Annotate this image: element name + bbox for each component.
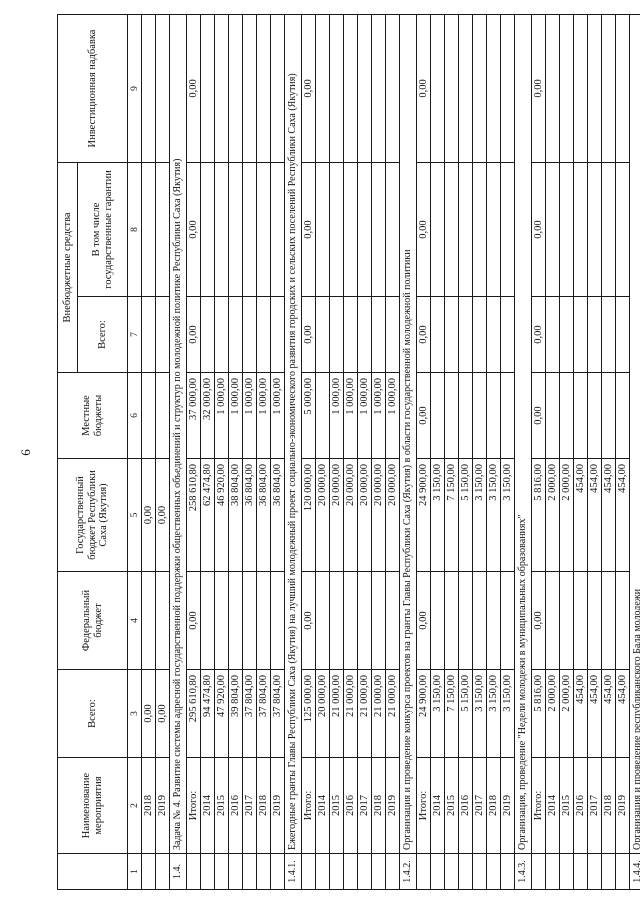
value-cell	[142, 373, 156, 459]
value-cell	[588, 572, 602, 670]
value-cell	[156, 572, 170, 670]
col-number: 9	[128, 14, 142, 162]
value-cell: 36 804,00	[271, 459, 285, 572]
value-cell	[386, 297, 400, 373]
row-number-cell	[445, 854, 459, 890]
value-cell: 37 804,00	[257, 670, 271, 758]
value-cell	[316, 297, 330, 373]
value-cell	[330, 297, 344, 373]
value-cell: 1 000,00	[271, 373, 285, 459]
table-row: 201837 804,0036 804,001 000,00	[257, 14, 271, 889]
row-number-cell	[156, 854, 170, 890]
value-cell	[201, 162, 215, 296]
row-label: Итого:	[187, 758, 201, 854]
table-row: 201721 000,0020 000,001 000,00	[358, 14, 372, 889]
value-cell	[271, 297, 285, 373]
value-cell: 32 000,00	[201, 373, 215, 459]
row-label: 2019	[156, 758, 170, 854]
col-number: 8	[128, 162, 142, 296]
value-cell	[271, 572, 285, 670]
value-cell	[546, 373, 560, 459]
row-number-cell	[358, 854, 372, 890]
value-cell: 0,00	[417, 14, 431, 162]
value-cell	[201, 14, 215, 162]
value-cell	[588, 373, 602, 459]
value-cell: 0,00	[417, 373, 431, 459]
value-cell	[501, 162, 515, 296]
table-row: 20190,000,00	[156, 14, 170, 889]
table-row: 20143 150,003 150,00	[431, 14, 445, 889]
page-number: 6	[18, 0, 34, 905]
value-cell	[358, 297, 372, 373]
value-cell: 62 474,80	[201, 459, 215, 572]
table-row: 20157 150,007 150,00	[445, 14, 459, 889]
section-row: 1.4.4.Организация и проведение республик…	[630, 14, 640, 889]
value-cell	[215, 572, 229, 670]
value-cell	[616, 572, 630, 670]
value-cell: 3 150,00	[473, 670, 487, 758]
table-row: Итого:125 000,000,00120 000,005 000,000,…	[302, 14, 316, 889]
value-cell	[546, 14, 560, 162]
header-state-guarantees: В том числе государственные гарантии	[78, 162, 128, 296]
value-cell: 454,00	[602, 459, 616, 572]
table-row: 201639 804,0038 804,001 000,00	[229, 14, 243, 889]
value-cell	[501, 14, 515, 162]
row-label: 2014	[431, 758, 445, 854]
value-cell	[501, 572, 515, 670]
row-number-cell	[546, 854, 560, 890]
value-cell: 0,00	[187, 572, 201, 670]
value-cell: 2 000,00	[546, 459, 560, 572]
value-cell	[546, 162, 560, 296]
row-number-cell	[417, 854, 431, 890]
value-cell	[271, 162, 285, 296]
value-cell	[546, 572, 560, 670]
section-row: 1.4.Задача № 4. Развитие системы адресно…	[170, 14, 187, 889]
header-row: Наименование мероприятия Всего: Федераль…	[58, 14, 78, 889]
row-number-cell	[302, 854, 316, 890]
col-number: 4	[128, 572, 142, 670]
row-number-cell	[215, 854, 229, 890]
table-row: 20180,000,00	[142, 14, 156, 889]
row-number-cell	[257, 854, 271, 890]
value-cell	[344, 162, 358, 296]
value-cell: 5 816,00	[532, 459, 546, 572]
row-label: 2014	[316, 758, 330, 854]
value-cell: 0,00	[532, 373, 546, 459]
value-cell: 7 150,00	[445, 670, 459, 758]
section-number: 1.4.	[170, 854, 187, 890]
value-cell	[229, 297, 243, 373]
value-cell: 0,00	[417, 297, 431, 373]
value-cell: 1 000,00	[229, 373, 243, 459]
value-cell	[445, 162, 459, 296]
row-number-cell	[142, 854, 156, 890]
row-number-cell	[187, 854, 201, 890]
value-cell	[574, 297, 588, 373]
value-cell: 36 804,00	[243, 459, 257, 572]
row-label: 2014	[546, 758, 560, 854]
row-label: 2015	[445, 758, 459, 854]
value-cell	[142, 572, 156, 670]
header-federal-budget: Федеральный бюджет	[58, 572, 128, 670]
value-cell	[602, 14, 616, 162]
value-cell	[243, 572, 257, 670]
value-cell: 0,00	[417, 572, 431, 670]
table-row: 20152 000,002 000,00	[560, 14, 574, 889]
value-cell: 0,00	[302, 297, 316, 373]
row-number-cell	[431, 854, 445, 890]
value-cell: 20 000,00	[316, 459, 330, 572]
col-number: 1	[128, 854, 142, 890]
row-label: 2019	[386, 758, 400, 854]
row-label: 2016	[229, 758, 243, 854]
table-body: 20180,000,0020190,000,001.4.Задача № 4. …	[142, 14, 640, 889]
row-number-cell	[201, 854, 215, 890]
row-label: Итого:	[302, 758, 316, 854]
value-cell: 1 000,00	[215, 373, 229, 459]
table-row: 2017454,00454,00	[588, 14, 602, 889]
value-cell: 454,00	[616, 459, 630, 572]
value-cell	[501, 373, 515, 459]
value-cell	[431, 373, 445, 459]
table-row: 201547 920,0046 920,001 000,00	[215, 14, 229, 889]
value-cell	[142, 297, 156, 373]
value-cell	[257, 572, 271, 670]
section-title: Организация и проведение республиканског…	[630, 14, 640, 853]
value-cell: 0,00	[156, 459, 170, 572]
table-row: 20165 150,005 150,00	[459, 14, 473, 889]
section-number: 1.4.1.	[285, 854, 302, 890]
value-cell: 20 000,00	[330, 459, 344, 572]
row-number-cell	[386, 854, 400, 890]
row-number-cell	[532, 854, 546, 890]
row-label: 2019	[501, 758, 515, 854]
table-row: 2016454,00454,00	[574, 14, 588, 889]
value-cell	[459, 162, 473, 296]
value-cell: 0,00	[142, 459, 156, 572]
value-cell	[330, 14, 344, 162]
table-row: 201494 474,8062 474,8032 000,00	[201, 14, 215, 889]
value-cell	[142, 14, 156, 162]
table-row: Итого:24 900,000,0024 900,000,000,000,00…	[417, 14, 431, 889]
value-cell: 24 900,00	[417, 670, 431, 758]
value-cell: 3 150,00	[431, 459, 445, 572]
value-cell	[473, 162, 487, 296]
value-cell	[156, 14, 170, 162]
section-title: Задача № 4. Развитие системы адресной го…	[170, 14, 187, 853]
value-cell	[358, 162, 372, 296]
section-title: Ежегодные гранты Главы Республики Саха (…	[285, 14, 302, 853]
column-numbering-row: 1 2 3 4 5 6 7 8 9	[128, 14, 142, 889]
value-cell: 120 000,00	[302, 459, 316, 572]
value-cell	[330, 162, 344, 296]
value-cell	[560, 297, 574, 373]
value-cell: 2 000,00	[560, 459, 574, 572]
value-cell: 3 150,00	[501, 670, 515, 758]
value-cell	[487, 373, 501, 459]
value-cell: 0,00	[532, 162, 546, 296]
col-number: 7	[128, 297, 142, 373]
table-row: 201937 804,0036 804,001 000,00	[271, 14, 285, 889]
value-cell	[201, 572, 215, 670]
row-number-cell	[271, 854, 285, 890]
value-cell	[372, 162, 386, 296]
header-extrabudget-total: Всего:	[78, 297, 128, 373]
value-cell	[588, 14, 602, 162]
value-cell: 3 150,00	[473, 459, 487, 572]
value-cell	[473, 14, 487, 162]
value-cell	[487, 162, 501, 296]
value-cell	[431, 162, 445, 296]
value-cell: 21 000,00	[386, 670, 400, 758]
value-cell	[616, 373, 630, 459]
value-cell: 21 000,00	[330, 670, 344, 758]
value-cell	[215, 297, 229, 373]
value-cell: 1 000,00	[243, 373, 257, 459]
value-cell	[344, 297, 358, 373]
row-number-cell	[229, 854, 243, 890]
section-row: 1.4.1.Ежегодные гранты Главы Республики …	[285, 14, 302, 889]
value-cell	[445, 297, 459, 373]
table-row: Итого:5 816,000,005 816,000,000,000,000,…	[532, 14, 546, 889]
value-cell: 5 150,00	[459, 670, 473, 758]
row-label: 2016	[459, 758, 473, 854]
row-label: 2015	[215, 758, 229, 854]
value-cell: 125 000,00	[302, 670, 316, 758]
value-cell: 37 000,00	[187, 373, 201, 459]
table-row: 201921 000,0020 000,001 000,00	[386, 14, 400, 889]
row-label: 2018	[257, 758, 271, 854]
row-label: 2019	[616, 758, 630, 854]
value-cell	[616, 297, 630, 373]
value-cell	[156, 373, 170, 459]
value-cell	[316, 572, 330, 670]
value-cell	[372, 297, 386, 373]
row-label: 2017	[358, 758, 372, 854]
value-cell	[201, 297, 215, 373]
value-cell	[431, 297, 445, 373]
value-cell	[602, 162, 616, 296]
value-cell	[560, 162, 574, 296]
value-cell: 39 804,00	[229, 670, 243, 758]
value-cell: 21 000,00	[358, 670, 372, 758]
value-cell: 0,00	[187, 297, 201, 373]
row-label: 2018	[372, 758, 386, 854]
table-row: 2019454,00454,00	[616, 14, 630, 889]
value-cell: 36 804,00	[257, 459, 271, 572]
row-number-cell	[574, 854, 588, 890]
value-cell	[588, 162, 602, 296]
value-cell	[616, 14, 630, 162]
section-title: Организация, проведение "Недели молодежи…	[515, 14, 532, 853]
row-number-cell	[560, 854, 574, 890]
value-cell	[316, 373, 330, 459]
col-number: 2	[128, 758, 142, 854]
table-row: 20142 000,002 000,00	[546, 14, 560, 889]
value-cell: 21 000,00	[344, 670, 358, 758]
value-cell	[344, 572, 358, 670]
value-cell	[229, 572, 243, 670]
value-cell: 0,00	[302, 162, 316, 296]
value-cell: 94 474,80	[201, 670, 215, 758]
table-row: 2018454,00454,00	[602, 14, 616, 889]
value-cell	[487, 297, 501, 373]
value-cell	[372, 14, 386, 162]
table-row: 201420 000,0020 000,00	[316, 14, 330, 889]
table-row: Итого:295 610,800,00258 610,8037 000,000…	[187, 14, 201, 889]
value-cell	[243, 14, 257, 162]
value-cell: 20 000,00	[316, 670, 330, 758]
header-total: Всего:	[58, 670, 128, 758]
value-cell	[445, 373, 459, 459]
row-number-cell	[330, 854, 344, 890]
value-cell	[459, 373, 473, 459]
value-cell: 1 000,00	[386, 373, 400, 459]
value-cell: 5 816,00	[532, 670, 546, 758]
row-number-cell	[487, 854, 501, 890]
financing-table: Наименование мероприятия Всего: Федераль…	[57, 14, 640, 890]
value-cell: 454,00	[588, 670, 602, 758]
table-row: 20193 150,003 150,00	[501, 14, 515, 889]
value-cell: 0,00	[532, 14, 546, 162]
value-cell	[431, 14, 445, 162]
header-state-budget: Государственный бюджет Республики Саха (…	[58, 459, 128, 572]
header-local-budgets: Местные бюджеты	[58, 373, 128, 459]
value-cell: 7 150,00	[445, 459, 459, 572]
row-number-cell	[459, 854, 473, 890]
value-cell	[229, 14, 243, 162]
section-row: 1.4.3.Организация, проведение "Недели мо…	[515, 14, 532, 889]
row-number-cell	[243, 854, 257, 890]
value-cell: 454,00	[616, 670, 630, 758]
value-cell	[602, 297, 616, 373]
value-cell	[330, 572, 344, 670]
value-cell: 295 610,80	[187, 670, 201, 758]
value-cell: 47 920,00	[215, 670, 229, 758]
value-cell: 3 150,00	[431, 670, 445, 758]
value-cell: 20 000,00	[358, 459, 372, 572]
table-row: 201821 000,0020 000,001 000,00	[372, 14, 386, 889]
value-cell: 1 000,00	[330, 373, 344, 459]
section-number: 1.4.4.	[630, 854, 640, 890]
value-cell: 0,00	[187, 162, 201, 296]
header-event-name: Наименование мероприятия	[58, 758, 128, 854]
value-cell: 454,00	[574, 670, 588, 758]
value-cell	[560, 572, 574, 670]
value-cell	[215, 14, 229, 162]
value-cell: 37 804,00	[271, 670, 285, 758]
value-cell	[616, 162, 630, 296]
row-number-cell	[473, 854, 487, 890]
value-cell: 24 900,00	[417, 459, 431, 572]
value-cell	[243, 297, 257, 373]
value-cell	[560, 14, 574, 162]
value-cell	[473, 572, 487, 670]
value-cell	[459, 297, 473, 373]
section-number: 1.4.2.	[400, 854, 417, 890]
header-number-col	[58, 854, 128, 890]
row-label: 2019	[271, 758, 285, 854]
value-cell: 454,00	[602, 670, 616, 758]
value-cell	[602, 373, 616, 459]
col-number: 5	[128, 459, 142, 572]
row-number-cell	[616, 854, 630, 890]
value-cell	[445, 572, 459, 670]
value-cell	[316, 14, 330, 162]
value-cell: 454,00	[588, 459, 602, 572]
value-cell: 1 000,00	[344, 373, 358, 459]
row-number-cell	[316, 854, 330, 890]
value-cell	[487, 14, 501, 162]
table-row: 20183 150,003 150,00	[487, 14, 501, 889]
row-label: 2017	[588, 758, 602, 854]
row-label: 2015	[330, 758, 344, 854]
value-cell: 0,00	[302, 572, 316, 670]
value-cell: 38 804,00	[229, 459, 243, 572]
value-cell	[316, 162, 330, 296]
header-investment-markup: Инвестиционная надбавка	[58, 14, 128, 162]
value-cell: 0,00	[156, 670, 170, 758]
row-label: 2016	[574, 758, 588, 854]
value-cell: 20 000,00	[372, 459, 386, 572]
value-cell	[386, 162, 400, 296]
value-cell: 258 610,80	[187, 459, 201, 572]
value-cell	[588, 297, 602, 373]
value-cell	[546, 297, 560, 373]
value-cell: 20 000,00	[344, 459, 358, 572]
row-number-cell	[602, 854, 616, 890]
value-cell: 454,00	[574, 459, 588, 572]
value-cell: 20 000,00	[386, 459, 400, 572]
section-number: 1.4.3.	[515, 854, 532, 890]
value-cell: 1 000,00	[358, 373, 372, 459]
table-row: 201621 000,0020 000,001 000,00	[344, 14, 358, 889]
row-number-cell	[588, 854, 602, 890]
value-cell: 2 000,00	[546, 670, 560, 758]
row-label: Итого:	[417, 758, 431, 854]
value-cell	[560, 373, 574, 459]
table-row: 201737 804,0036 804,001 000,00	[243, 14, 257, 889]
value-cell	[501, 297, 515, 373]
value-cell	[257, 14, 271, 162]
row-number-cell	[501, 854, 515, 890]
value-cell	[229, 162, 243, 296]
value-cell	[215, 162, 229, 296]
value-cell	[156, 162, 170, 296]
row-label: 2018	[602, 758, 616, 854]
value-cell	[431, 572, 445, 670]
value-cell	[386, 572, 400, 670]
value-cell	[602, 572, 616, 670]
value-cell	[574, 572, 588, 670]
value-cell: 0,00	[417, 162, 431, 296]
row-label: 2018	[487, 758, 501, 854]
value-cell: 2 000,00	[560, 670, 574, 758]
row-label: 2016	[344, 758, 358, 854]
value-cell: 3 150,00	[487, 459, 501, 572]
value-cell: 0,00	[187, 14, 201, 162]
value-cell: 21 000,00	[372, 670, 386, 758]
value-cell	[372, 572, 386, 670]
value-cell	[386, 14, 400, 162]
value-cell	[445, 14, 459, 162]
value-cell	[574, 14, 588, 162]
table-row: 201521 000,0020 000,001 000,00	[330, 14, 344, 889]
value-cell	[473, 373, 487, 459]
value-cell: 5 000,00	[302, 373, 316, 459]
header-extrabudget-group: Внебюджетные средства	[58, 162, 78, 372]
